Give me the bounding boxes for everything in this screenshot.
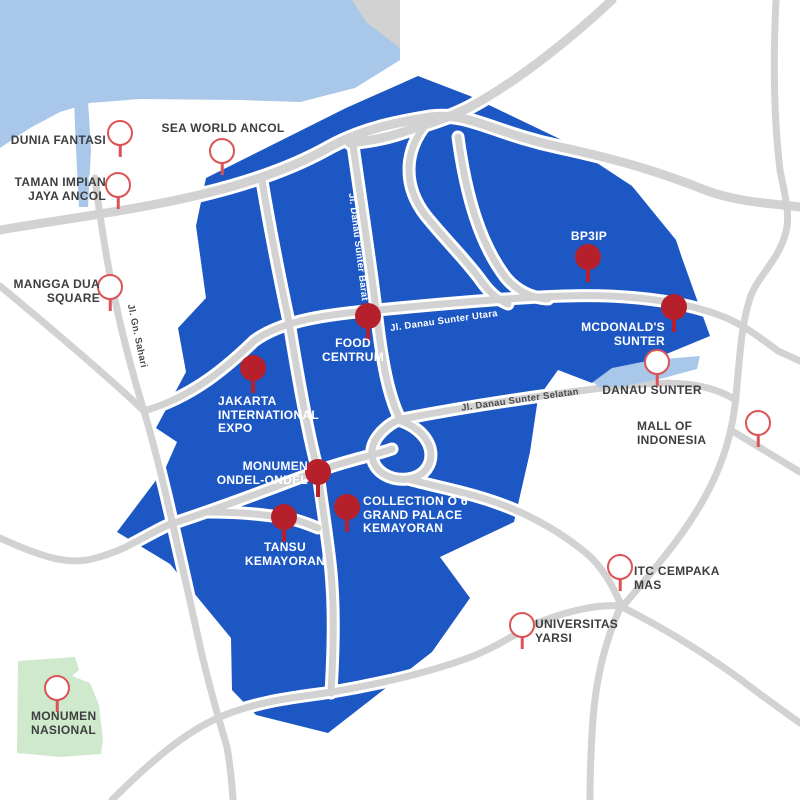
pin-taman-impian-jaya-ancol — [105, 172, 131, 198]
label-collection-o-6-grand-palace: COLLECTION O 6GRAND PALACEKEMAYORAN — [363, 495, 493, 536]
map-pin-stem — [316, 482, 320, 497]
pin-bp3ip — [575, 244, 601, 270]
pin-monumen-nasional — [44, 675, 70, 701]
kemayoran-sunter-map: Jl. Gn. Sahari Jl. Danau Sunter Barat Jl… — [0, 0, 800, 800]
label-food-centrum: FOODCENTRUM — [312, 337, 394, 364]
label-monumen-ondel-ondel: MONUMENONDEL-ONDEL — [198, 460, 308, 487]
map-pin-stem — [117, 196, 120, 209]
label-sea-world-ancol: SEA WORLD ANCOL — [147, 122, 299, 136]
map-pin-stem — [119, 144, 122, 157]
map-pin-stem — [251, 378, 255, 393]
map-pin-outline-icon — [105, 172, 131, 198]
pin-itc-cempaka-mas — [607, 554, 633, 580]
map-pin-stem — [672, 317, 676, 332]
pin-mcdonalds-sunter — [661, 294, 687, 320]
label-mcdonalds-sunter: MCDONALD'SSUNTER — [575, 321, 665, 348]
map-pin-outline-icon — [97, 274, 123, 300]
label-tansu-kemayoran: TANSUKEMAYORAN — [234, 541, 336, 568]
pin-monumen-ondel-ondel — [305, 459, 331, 485]
map-pin-outline-icon — [607, 554, 633, 580]
label-bp3ip: BP3IP — [554, 230, 624, 244]
label-mall-of-indonesia: MALL OF INDONESIA — [637, 420, 749, 447]
park-monas-shape — [17, 657, 103, 757]
pin-food-centrum — [355, 303, 381, 329]
label-mangga-dua-square: MANGGA DUASQUARE — [0, 278, 100, 305]
label-itc-cempaka-mas: ITC CEMPAKA MAS — [634, 565, 744, 592]
pin-jakarta-international-expo — [240, 355, 266, 381]
map-pin-outline-icon — [509, 612, 535, 638]
label-jakarta-international-expo: JAKARTAINTERNATIONALEXPO — [218, 395, 338, 436]
label-taman-impian-jaya-ancol: TAMAN IMPIANJAYA ANCOL — [2, 176, 106, 203]
pin-tansu-kemayoran — [271, 504, 297, 530]
map-pin-outline-icon — [644, 349, 670, 375]
label-dunia-fantasi: DUNIA FANTASI — [2, 134, 106, 148]
label-monumen-nasional: MONUMENNASIONAL — [31, 710, 116, 737]
pin-sea-world-ancol — [209, 138, 235, 164]
map-pin-stem — [109, 298, 112, 311]
map-pin-stem — [521, 636, 524, 649]
map-pin-stem — [345, 517, 349, 532]
label-danau-sunter: DANAU SUNTER — [590, 384, 714, 398]
map-pin-outline-icon — [44, 675, 70, 701]
pin-danau-sunter — [644, 349, 670, 375]
pin-mangga-dua-square — [97, 274, 123, 300]
label-universitas-yarsi: UNIVERSITASYARSI — [535, 618, 630, 645]
map-pin-outline-icon — [209, 138, 235, 164]
map-pin-stem — [586, 267, 590, 282]
pin-universitas-yarsi — [509, 612, 535, 638]
pin-collection-o-6 — [334, 494, 360, 520]
map-pin-stem — [221, 162, 224, 175]
pin-dunia-fantasi — [107, 120, 133, 146]
map-pin-stem — [757, 434, 760, 447]
map-pin-outline-icon — [107, 120, 133, 146]
map-pin-stem — [619, 578, 622, 591]
